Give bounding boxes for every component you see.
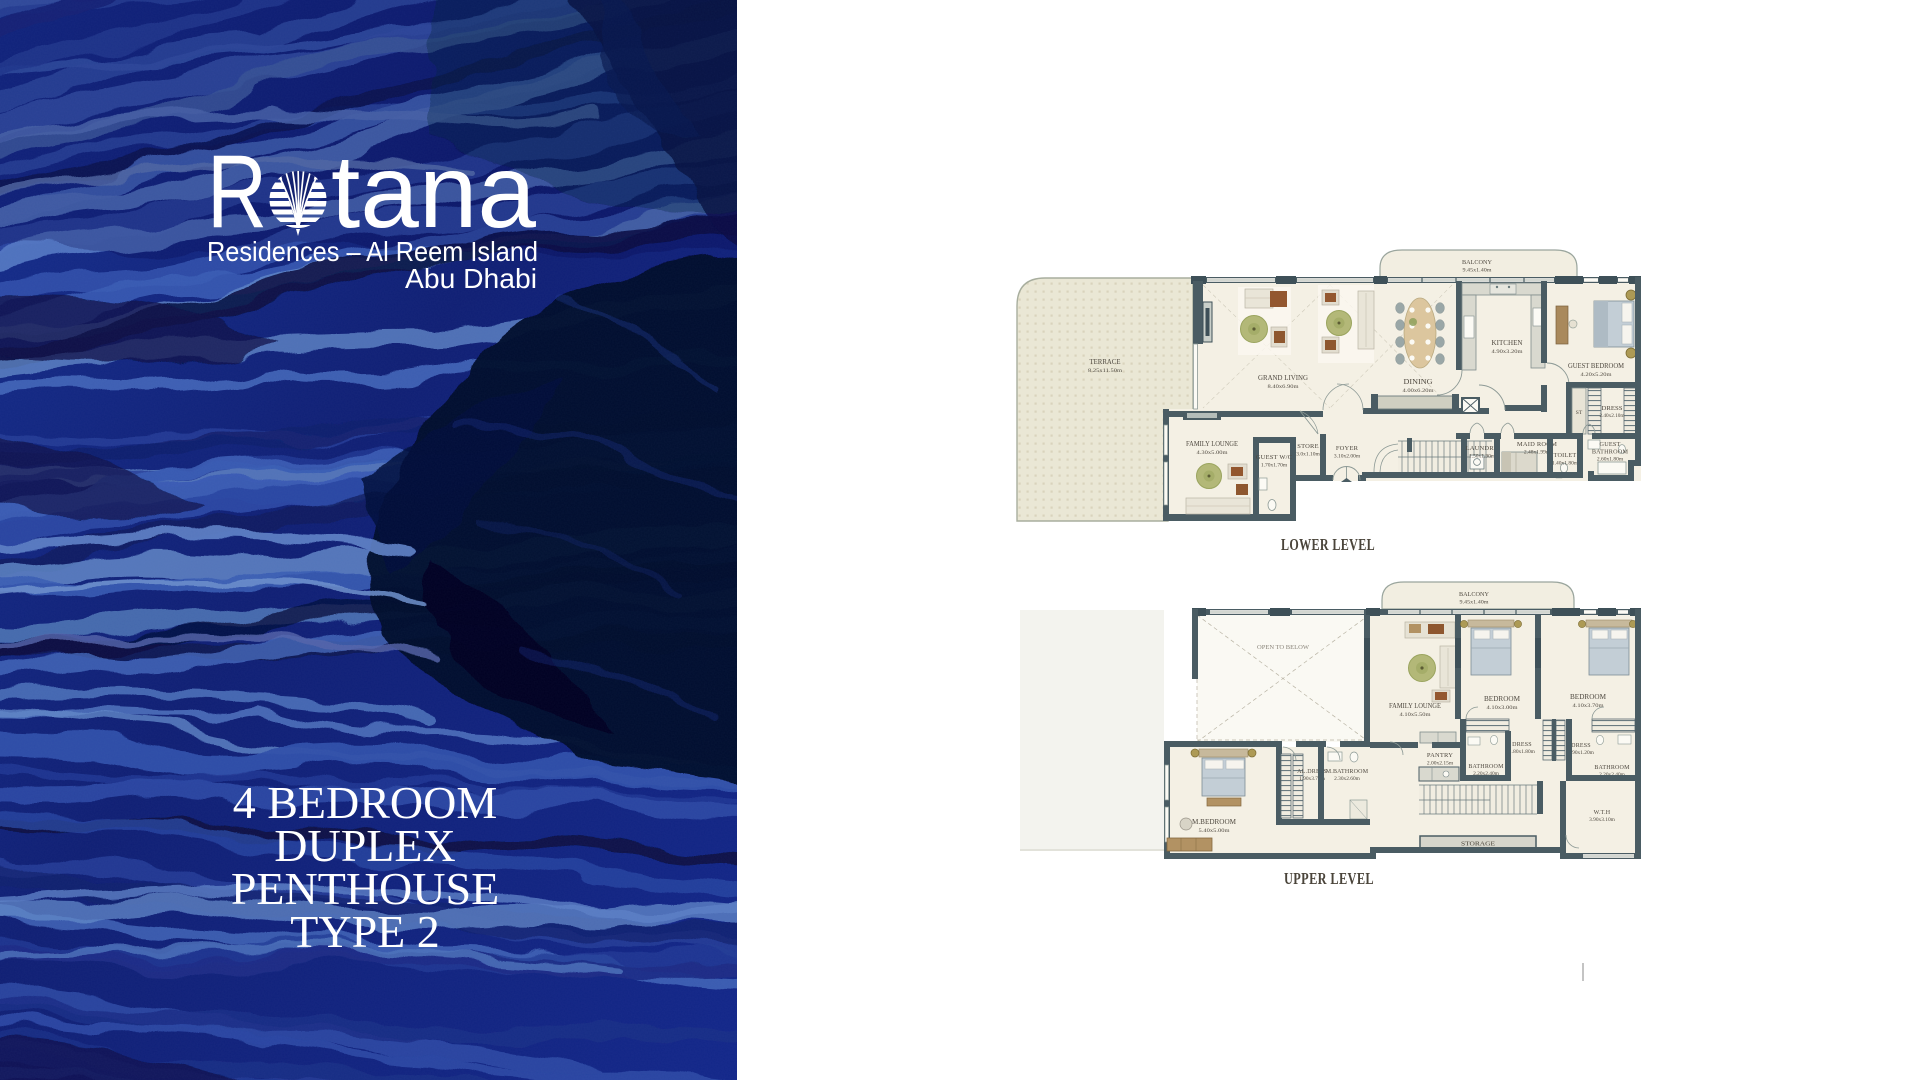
- svg-text:1.50x1.90m: 1.50x1.90m: [1469, 454, 1496, 460]
- svg-text:2.00x2.15m: 2.00x2.15m: [1427, 761, 1454, 767]
- svg-text:ST: ST: [1576, 410, 1583, 416]
- svg-text:8.25x11.50m: 8.25x11.50m: [1088, 368, 1123, 374]
- svg-text:1.70x1.70m: 1.70x1.70m: [1261, 463, 1288, 469]
- svg-text:BATHROOM: BATHROOM: [1592, 449, 1629, 456]
- svg-text:9.45x1.40m: 9.45x1.40m: [1463, 268, 1493, 274]
- svg-text:1.90x1.20m: 1.90x1.20m: [1568, 750, 1595, 756]
- svg-text:DRESS: DRESS: [1512, 742, 1532, 748]
- svg-text:GUEST BEDROOM: GUEST BEDROOM: [1568, 363, 1624, 370]
- svg-text:KITCHEN: KITCHEN: [1492, 340, 1523, 347]
- svg-text:3.0x1.10m: 3.0x1.10m: [1296, 452, 1320, 458]
- svg-text:UPPER LEVEL: UPPER LEVEL: [1284, 869, 1374, 888]
- svg-text:3.10x2.00m: 3.10x2.00m: [1334, 454, 1361, 460]
- svg-text:5.40x5.00m: 5.40x5.00m: [1199, 828, 1231, 834]
- svg-text:BALCONY: BALCONY: [1459, 591, 1490, 598]
- svg-text:GUEST: GUEST: [1600, 441, 1621, 448]
- svg-text:M.BEDROOM: M.BEDROOM: [1192, 819, 1236, 826]
- svg-text:2.60x1.80m: 2.60x1.80m: [1597, 457, 1624, 463]
- svg-text:STORE: STORE: [1297, 443, 1318, 450]
- svg-text:8.40x6.90m: 8.40x6.90m: [1268, 384, 1300, 390]
- svg-text:BATHROOM: BATHROOM: [1468, 764, 1504, 770]
- svg-text:W.T.H: W.T.H: [1594, 810, 1611, 816]
- svg-text:4.90x3.20m: 4.90x3.20m: [1492, 349, 1524, 355]
- svg-text:4.10x5.50m: 4.10x5.50m: [1400, 712, 1432, 718]
- svg-text:1.40x1.80m: 1.40x1.80m: [1552, 461, 1579, 467]
- svg-text:LAUNDRY: LAUNDRY: [1466, 445, 1499, 452]
- svg-text:4.20x5.20m: 4.20x5.20m: [1581, 372, 1613, 378]
- svg-text:M.BATHROOM: M.BATHROOM: [1326, 769, 1369, 775]
- svg-text:2.48x1.99m: 2.48x1.99m: [1524, 450, 1551, 456]
- svg-text:OPEN TO BELOW: OPEN TO BELOW: [1257, 645, 1309, 651]
- svg-text:1.80x1.80m: 1.80x1.80m: [1509, 749, 1536, 755]
- svg-text:DRESS: DRESS: [1571, 743, 1591, 749]
- svg-text:4.10x3.00m: 4.10x3.00m: [1487, 705, 1519, 711]
- svg-text:BEDROOM: BEDROOM: [1570, 694, 1606, 701]
- svg-text:LOWER LEVEL: LOWER LEVEL: [1281, 535, 1375, 554]
- svg-text:4.30x5.00m: 4.30x5.00m: [1197, 450, 1229, 456]
- svg-text:PANTRY: PANTRY: [1427, 752, 1453, 759]
- svg-text:STORAGE: STORAGE: [1461, 841, 1495, 848]
- svg-text:BALCONY: BALCONY: [1462, 259, 1493, 266]
- svg-text:2.30x2.60m: 2.30x2.60m: [1334, 776, 1361, 782]
- svg-text:4.00x6.20m: 4.00x6.20m: [1403, 388, 1435, 394]
- svg-text:BEDROOM: BEDROOM: [1484, 696, 1520, 703]
- svg-text:3.90x3.10m: 3.90x3.10m: [1589, 817, 1616, 823]
- svg-text:9.45x1.40m: 9.45x1.40m: [1460, 600, 1490, 606]
- svg-text:FAMILY LOUNGE: FAMILY LOUNGE: [1186, 441, 1238, 448]
- svg-text:TERRACE: TERRACE: [1090, 359, 1121, 366]
- svg-text:2.40x2.10m: 2.40x2.10m: [1600, 413, 1625, 419]
- svg-text:FOYER: FOYER: [1336, 445, 1359, 452]
- svg-text:DINING: DINING: [1404, 379, 1433, 386]
- svg-text:GRAND LIVING: GRAND LIVING: [1258, 375, 1308, 382]
- svg-text:2.20x2.40m: 2.20x2.40m: [1473, 771, 1500, 777]
- svg-text:FAMILY LOUNGE: FAMILY LOUNGE: [1389, 703, 1441, 710]
- svg-text:DRESS: DRESS: [1602, 405, 1624, 412]
- svg-text:TOILET: TOILET: [1554, 452, 1577, 459]
- svg-text:BATHROOM: BATHROOM: [1594, 765, 1630, 771]
- svg-text:GUEST W/C: GUEST W/C: [1256, 454, 1292, 461]
